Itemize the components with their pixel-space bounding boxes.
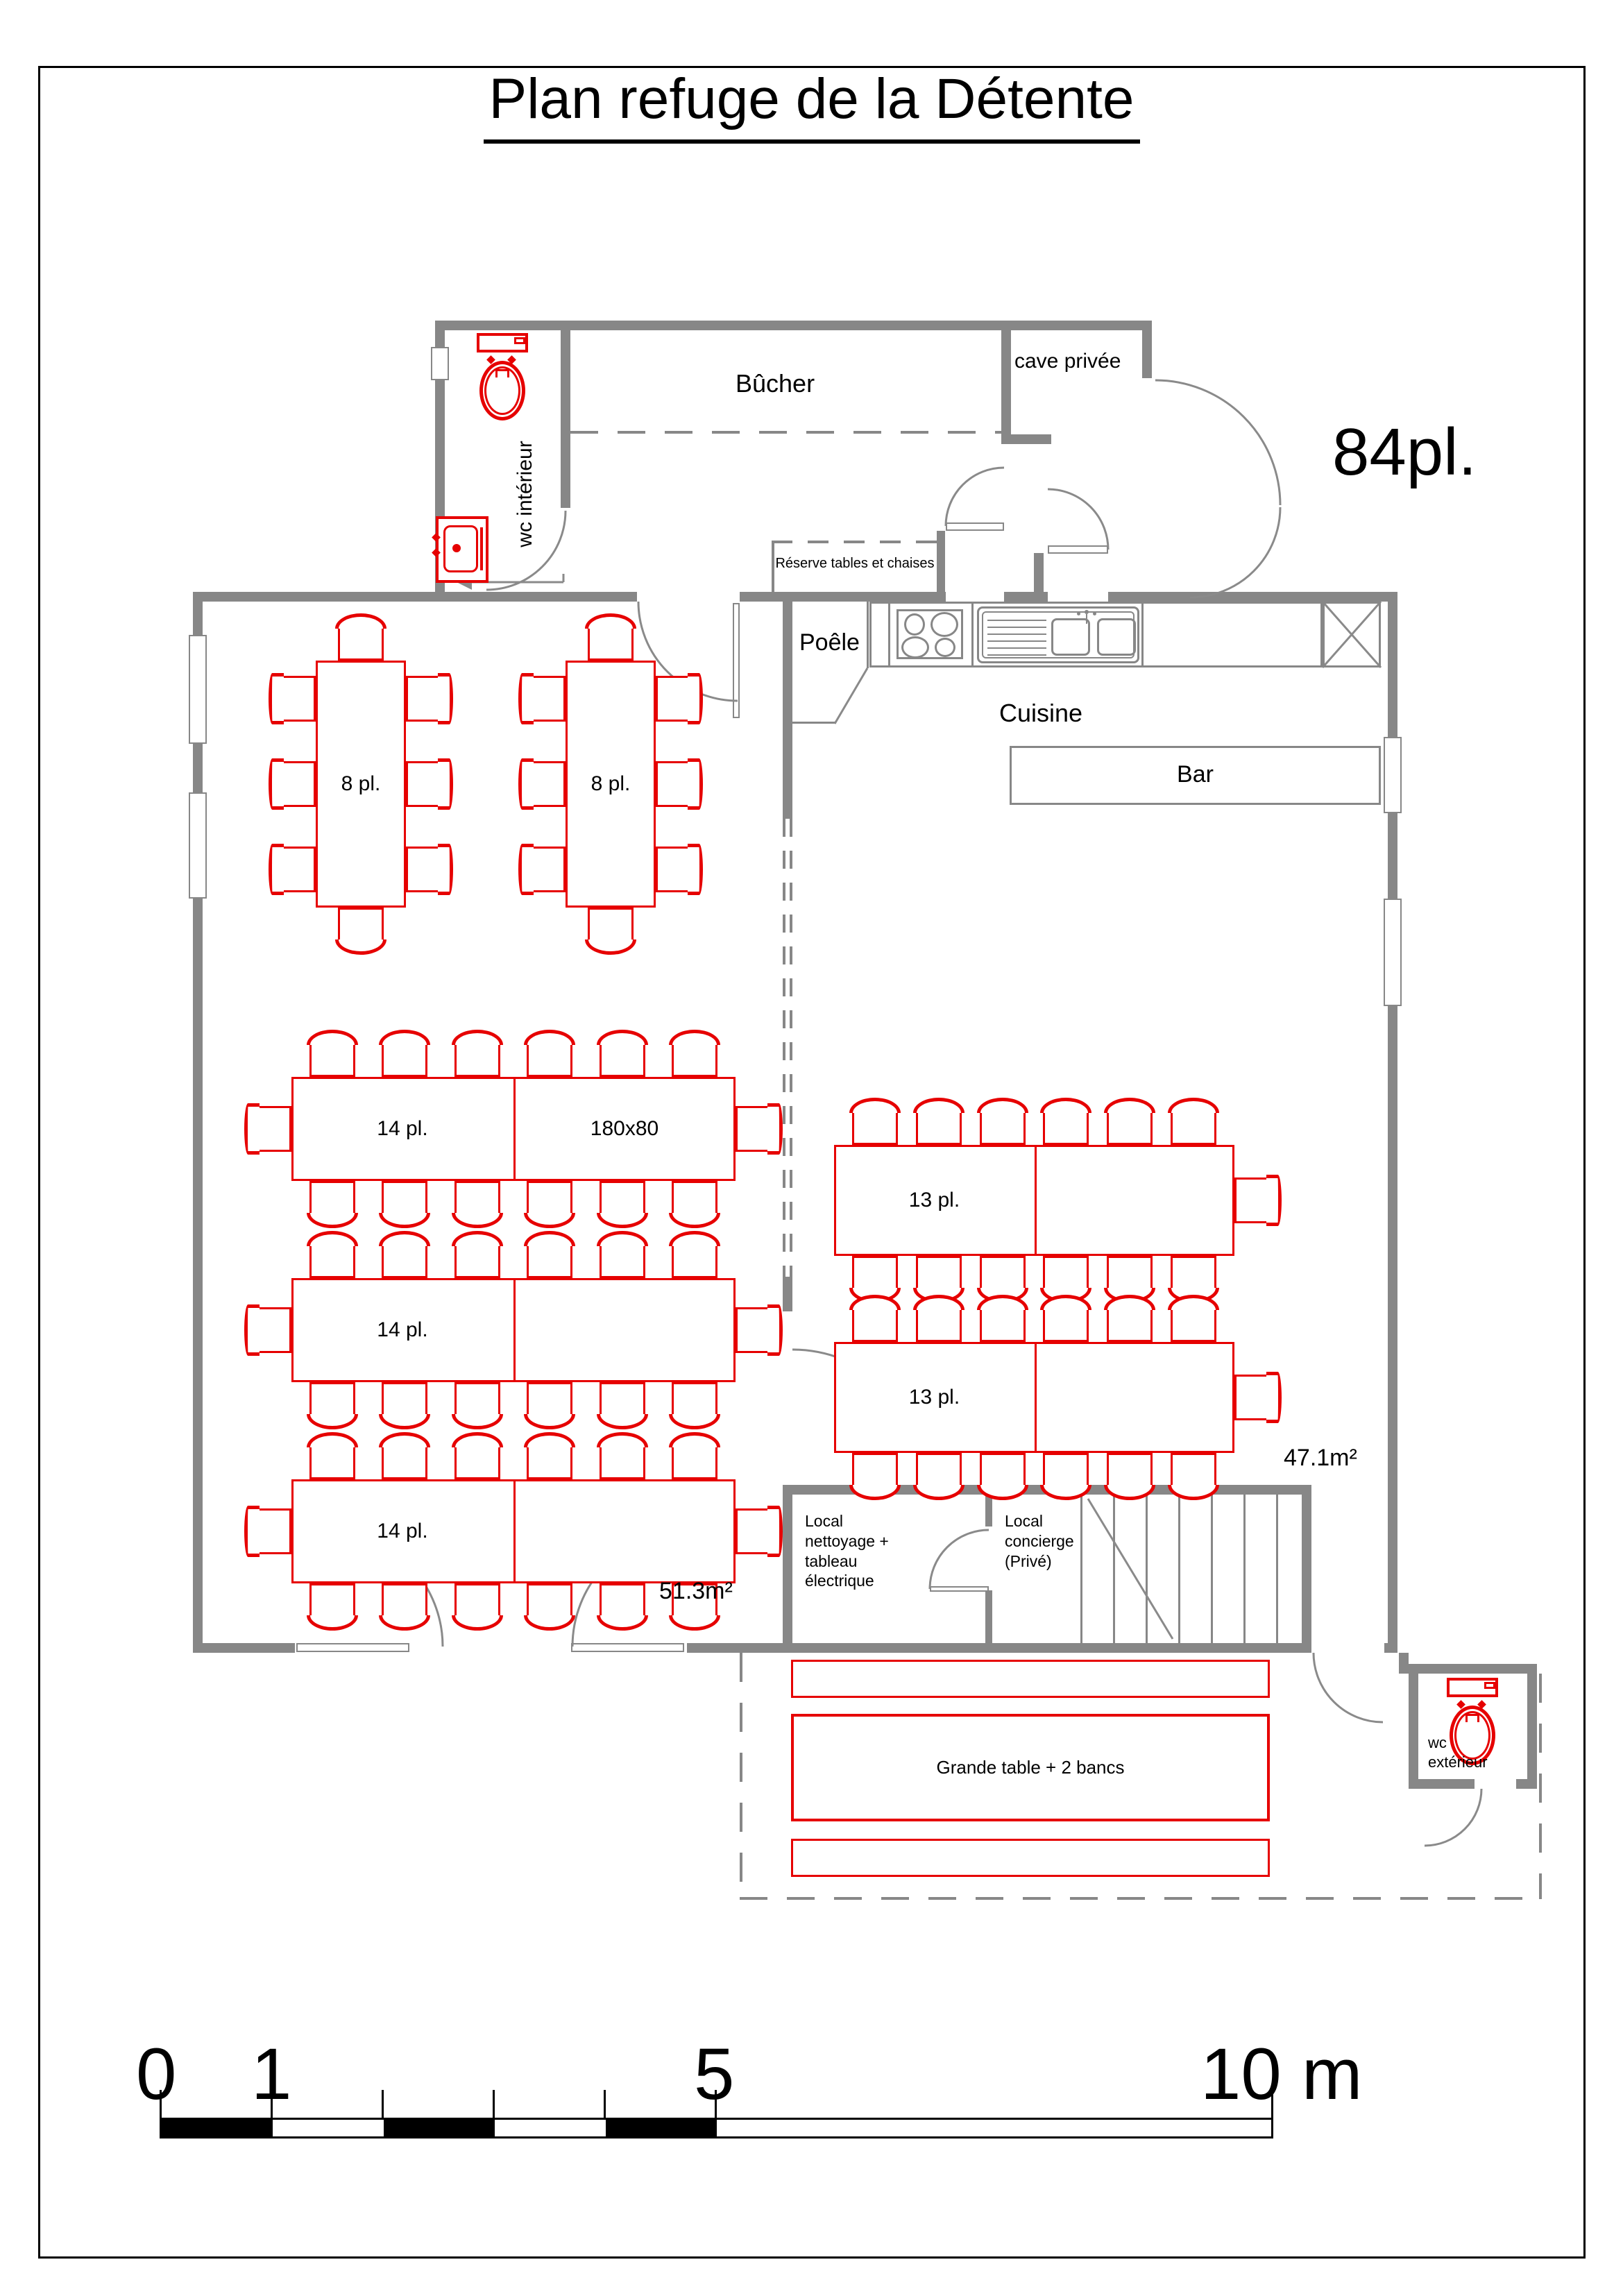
chair-icon [527, 676, 566, 722]
chair-icon [600, 1239, 645, 1278]
chair-icon [980, 1303, 1026, 1342]
chair-icon [406, 847, 445, 892]
table-14pl-3-label: 14 pl. [291, 1479, 513, 1583]
scale-tick [271, 2090, 273, 2118]
table-8pl-1-label: 8 pl. [316, 661, 406, 908]
chair-icon [600, 1038, 645, 1077]
chair-icon [338, 908, 384, 946]
chair-icon [916, 1256, 962, 1295]
room-label-local-concierge: Local concierge (Privé) [1005, 1511, 1074, 1571]
chair-icon [454, 1583, 500, 1622]
chair-icon [600, 1583, 645, 1622]
stove-icon [897, 609, 963, 659]
table-13pl-2-label: 13 pl. [834, 1342, 1035, 1453]
chair-icon [1043, 1256, 1089, 1295]
table-14pl-1-size: 180x80 [513, 1077, 736, 1181]
terrace-dashed-bottom [740, 1897, 1542, 1900]
chair-icon [672, 1382, 717, 1421]
chair-icon [916, 1106, 962, 1145]
wall-wcext-bottom-a [1409, 1779, 1475, 1789]
wall-reserve-right [937, 531, 945, 592]
chair-icon [527, 1440, 572, 1479]
chair-icon [980, 1256, 1026, 1295]
chair-icon [1107, 1453, 1153, 1492]
chair-icon [1171, 1256, 1216, 1295]
crossed-box [1323, 602, 1381, 667]
chair-icon [980, 1453, 1026, 1492]
terrace-bench-1 [791, 1660, 1270, 1698]
terrace-dashed-left [740, 1653, 742, 1899]
chair-icon [454, 1239, 500, 1278]
wall-wcext-stub [1399, 1653, 1409, 1674]
scale-tick [1271, 2090, 1273, 2118]
scale-tick [493, 2090, 495, 2118]
poele-right-line [867, 602, 869, 668]
counter-div-2 [971, 602, 974, 667]
wall-middle-dashed-b [790, 819, 792, 1277]
chair-icon [736, 1106, 774, 1152]
scale-tick [604, 2090, 606, 2118]
chair-icon [309, 1382, 355, 1421]
chair-icon [1043, 1303, 1089, 1342]
scale-label-0: 0 [136, 2033, 176, 2116]
chair-icon [253, 1307, 291, 1353]
scale-tick [160, 2090, 162, 2118]
chair-icon [672, 1440, 717, 1479]
page-title: Plan refuge de la Détente [484, 64, 1140, 144]
chair-icon [382, 1440, 427, 1479]
area-label-main-hall: 51.3m² [659, 1576, 733, 1606]
chair-icon [309, 1583, 355, 1622]
wall-middle-lower [783, 1277, 792, 1311]
floor-plan-page: Plan refuge de la Détente 84pl. [0, 0, 1623, 2296]
chair-icon [852, 1453, 898, 1492]
rear-door-opening [1311, 1642, 1384, 1654]
wall-main-top [193, 592, 1397, 602]
chair-icon [277, 761, 316, 807]
wall-stairs-right [1302, 1495, 1311, 1643]
table-14pl-2-label: 14 pl. [291, 1278, 513, 1382]
room-label-bucher: Bûcher [736, 368, 815, 399]
corridor-door-leaf [733, 603, 740, 718]
chair-icon [1171, 1453, 1216, 1492]
chair-icon [736, 1508, 774, 1554]
chair-icon [672, 1181, 717, 1220]
stair-tread [1178, 1495, 1180, 1643]
room-label-bar: Bar [1010, 760, 1381, 790]
room-label-cuisine: Cuisine [999, 697, 1082, 729]
terrace-dashed-right [1539, 1674, 1542, 1899]
chair-icon [656, 761, 695, 807]
capacity-label: 84pl. [1332, 411, 1477, 494]
chair-icon [406, 761, 445, 807]
bucher-dashed-line [570, 431, 1001, 434]
chair-icon [1234, 1375, 1273, 1420]
stair-tread [1243, 1495, 1246, 1643]
wall-wcext-top [1409, 1664, 1537, 1674]
chair-icon [588, 622, 634, 661]
chair-icon [672, 1239, 717, 1278]
wall-upper-top [435, 321, 1152, 330]
window-wc-left [431, 347, 449, 380]
wall-wcext-left [1409, 1664, 1418, 1789]
chair-icon [527, 1181, 572, 1220]
scale-tick [715, 2090, 717, 2118]
wall-cave-bottom [1001, 434, 1051, 444]
stair-tread [1113, 1495, 1115, 1643]
wall-cave-right [1142, 330, 1152, 378]
double-door-leaf-left [296, 1643, 409, 1652]
chair-icon [382, 1239, 427, 1278]
stair-tread [1146, 1495, 1148, 1643]
chair-icon [600, 1382, 645, 1421]
chair-icon [309, 1239, 355, 1278]
chair-icon [1171, 1303, 1216, 1342]
room-label-wc-interieur: wc intérieur [512, 390, 532, 598]
chair-icon [916, 1453, 962, 1492]
room-label-local-nettoyage: Local nettoyage + tableau électrique [805, 1511, 889, 1591]
window-right-1 [1384, 737, 1402, 813]
window-left-1 [189, 635, 207, 744]
stair-tread [1211, 1495, 1213, 1643]
chair-icon [1107, 1106, 1153, 1145]
wall-wcext-bottom-b [1516, 1779, 1537, 1789]
chair-icon [454, 1382, 500, 1421]
corridor-door-opening [637, 590, 740, 603]
chair-icon [600, 1181, 645, 1220]
wall-cave-left [1001, 330, 1011, 444]
chair-icon [309, 1181, 355, 1220]
chair-icon [852, 1106, 898, 1145]
chair-icon [253, 1508, 291, 1554]
wall-wc-right [561, 330, 570, 508]
chair-icon [527, 761, 566, 807]
wall-wcext-right [1527, 1664, 1537, 1789]
chair-icon [277, 676, 316, 722]
chair-icon [1171, 1106, 1216, 1145]
window-left-2 [189, 792, 207, 899]
wall-middle-upper [783, 602, 792, 819]
chair-icon [1107, 1256, 1153, 1295]
scale-label-10m: 10 m [1200, 2033, 1362, 2116]
table-8pl-2-label: 8 pl. [566, 661, 656, 908]
chair-icon [454, 1440, 500, 1479]
locals-door-leaf [930, 1586, 989, 1592]
double-door-leaf-right [571, 1643, 684, 1652]
wall-entry-post [1034, 553, 1044, 592]
chair-icon [382, 1038, 427, 1077]
chair-icon [382, 1181, 427, 1220]
window-right-2 [1384, 899, 1402, 1006]
room-label-wc-exterieur: wc extérieur [1428, 1733, 1488, 1771]
chair-icon [406, 676, 445, 722]
wall-middle-dashed-a [783, 819, 785, 1277]
chair-icon [1043, 1453, 1089, 1492]
chair-icon [527, 1038, 572, 1077]
sink-icon [436, 516, 488, 583]
entry-door-leaf-b [1048, 545, 1108, 554]
chair-icon [736, 1307, 774, 1353]
chair-icon [1107, 1303, 1153, 1342]
room-label-poele: Poêle [799, 628, 860, 658]
terrace-bench-2 [791, 1839, 1270, 1877]
poele-bottom-line [790, 722, 836, 724]
locals-divider-door-gap [984, 1527, 994, 1590]
table-14pl-1-label: 14 pl. [291, 1077, 513, 1181]
chair-icon [527, 1583, 572, 1622]
terrace-grande-table-label: Grande table + 2 bancs [791, 1714, 1270, 1821]
chair-icon [338, 622, 384, 661]
counter-div-1 [888, 602, 890, 667]
chair-icon [1043, 1106, 1089, 1145]
chair-icon [1234, 1177, 1273, 1223]
area-label-kitchen-side: 47.1m² [1284, 1443, 1357, 1473]
counter-div-3 [1141, 602, 1144, 667]
chair-icon [852, 1303, 898, 1342]
chair-icon [527, 1382, 572, 1421]
chair-icon [382, 1382, 427, 1421]
entry-door-leaf-a [946, 522, 1004, 531]
chair-icon [277, 847, 316, 892]
chair-icon [527, 847, 566, 892]
wall-main-left [193, 592, 203, 1653]
chair-icon [454, 1038, 500, 1077]
scale-tick [382, 2090, 384, 2118]
room-label-cave-privee: cave privée [1014, 348, 1121, 375]
scale-bar [160, 2118, 1273, 2138]
chair-icon [253, 1106, 291, 1152]
stair-tread [1276, 1495, 1278, 1643]
chair-icon [600, 1440, 645, 1479]
chair-icon [672, 1038, 717, 1077]
wall-reserve-top-dashed [772, 541, 937, 543]
wall-locals-left [783, 1485, 792, 1653]
stairs-icon [1080, 1495, 1082, 1643]
chair-icon [382, 1583, 427, 1622]
chair-icon [588, 908, 634, 946]
chair-icon [309, 1440, 355, 1479]
chair-icon [309, 1038, 355, 1077]
chair-icon [454, 1181, 500, 1220]
room-label-reserve: Réserve tables et chaises [774, 555, 935, 572]
chair-icon [916, 1303, 962, 1342]
kitchen-sink-icon [977, 606, 1139, 663]
chair-icon [980, 1106, 1026, 1145]
table-13pl-1-label: 13 pl. [834, 1145, 1035, 1256]
chair-icon [852, 1256, 898, 1295]
chair-icon [527, 1239, 572, 1278]
chair-icon [656, 847, 695, 892]
chair-icon [656, 676, 695, 722]
